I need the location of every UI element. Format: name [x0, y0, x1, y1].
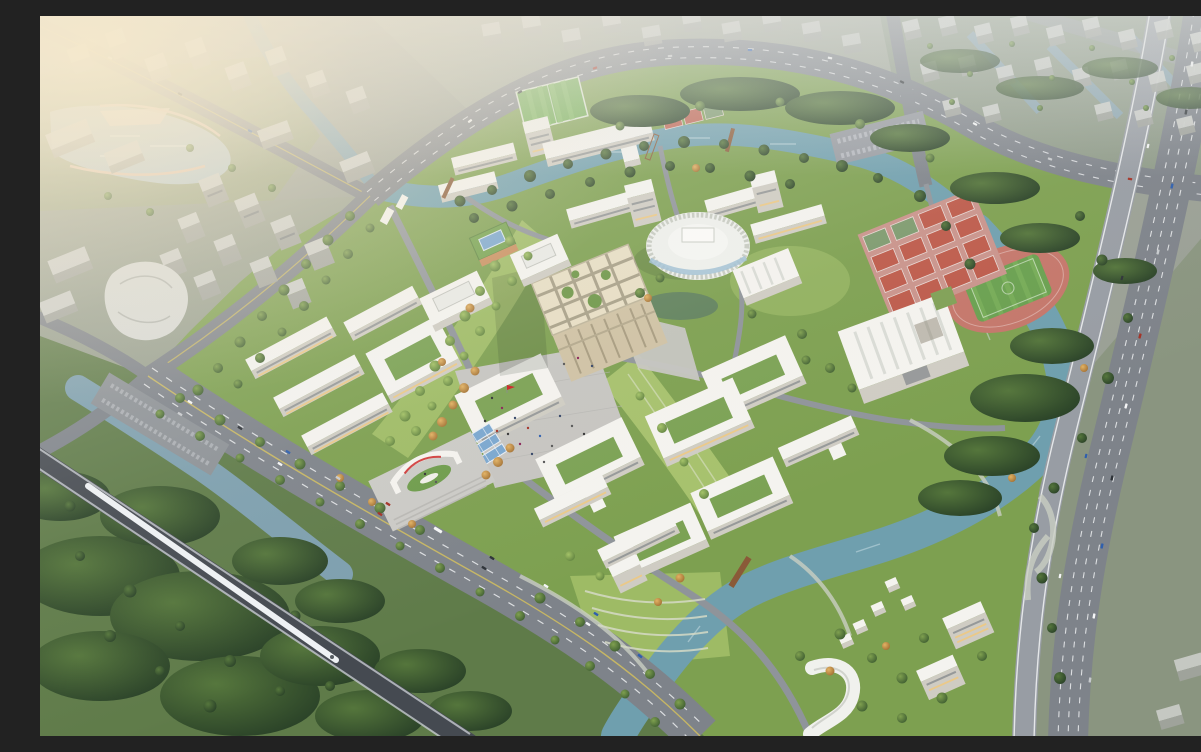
atmosphere-haze — [40, 16, 1201, 736]
campus-aerial-rendering: Aerial dusk rendering of a university ca… — [40, 16, 1201, 736]
rendering-canvas: Aerial dusk rendering of a university ca… — [40, 16, 1201, 736]
sun-glare — [40, 16, 1201, 736]
